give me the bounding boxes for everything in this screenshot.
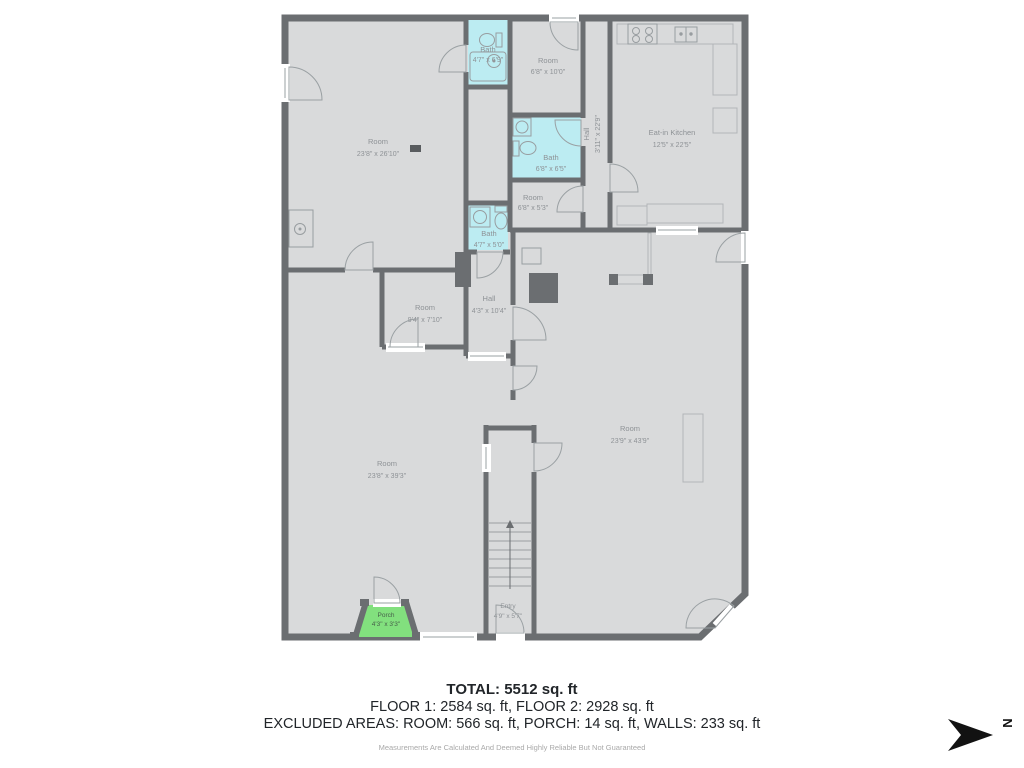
floor-slab [285,18,745,637]
room-label: Eat-in Kitchen [649,128,696,137]
room-label: Room [523,193,543,202]
room-dims: 23'8" x 26'10" [357,151,400,158]
room-label: Entry [500,603,516,610]
room-label: Room [415,303,435,312]
floor-areas-text: FLOOR 1: 2584 sq. ft, FLOOR 2: 2928 sq. … [0,699,1024,716]
room-label: Bath [480,45,495,54]
room-dims: 4'3" x 10'4" [472,308,507,315]
room-dims: 6'8" x 10'0" [531,69,566,76]
disclaimer-text: Measurements Are Calculated And Deemed H… [0,743,1024,752]
excluded-areas-text: EXCLUDED AREAS: ROOM: 566 sq. ft, PORCH:… [0,716,1024,733]
room-label: Hall [483,294,496,303]
room-dims: 9'4" x 7'10" [408,317,443,324]
room-dims: 6'8" x 5'3" [518,205,549,212]
room-dims: 4'7" x 6'9" [473,57,504,64]
room-dims: 12'5" x 22'5" [653,142,692,149]
floorplan-page: Room 23'8" x 26'10" Bath 4'7" x 6'9" Roo… [0,0,1024,768]
room-dims: 23'9" x 43'9" [611,438,650,445]
room-label: Room [368,137,388,146]
room-label: Bath [481,229,496,238]
room-label: Room [538,56,558,65]
room-label: Room [620,424,640,433]
room-dims: 6'8" x 6'5" [536,166,567,173]
room-dims: 4'3" x 3'3" [372,621,401,628]
total-area-text: TOTAL: 5512 sq. ft [0,681,1024,699]
room-label: Room [377,459,397,468]
floorplan-canvas: Room 23'8" x 26'10" Bath 4'7" x 6'9" Roo… [0,0,1024,768]
room-label: Bath [543,153,558,162]
area-summary: TOTAL: 5512 sq. ft FLOOR 1: 2584 sq. ft,… [0,681,1024,752]
room-label: Hall [582,127,591,140]
room-dims: 4'9" x 5'7" [494,613,523,620]
room-dims: 23'8" x 39'3" [368,473,407,480]
room-dims: 4'7" x 5'0" [474,242,505,249]
room-dims: 3'11" x 22'9" [595,115,602,153]
room-label: Porch [378,612,395,619]
